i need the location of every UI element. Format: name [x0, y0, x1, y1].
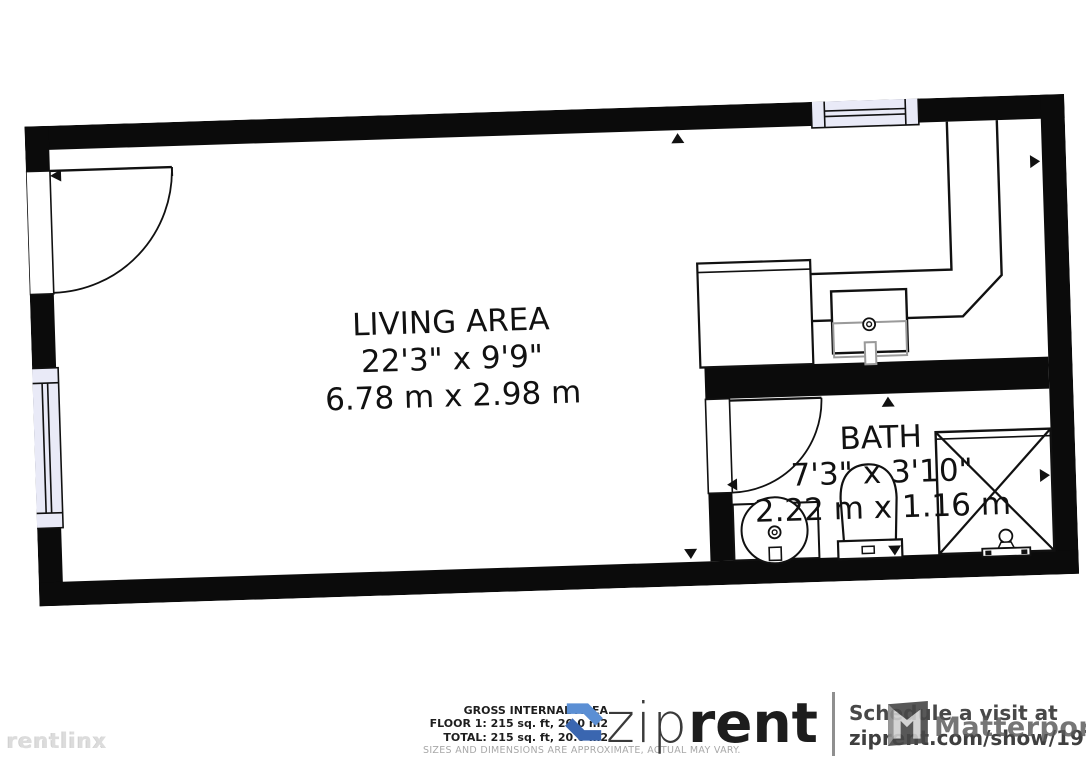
rentlinx-watermark: rentlinx	[7, 729, 107, 753]
living-area-dims-metric: 6.78 m x 2.98 m	[325, 374, 582, 418]
bath-name: BATH	[839, 419, 922, 458]
floor-plan-drawing: LIVING AREA 22'3" x 9'9" 6.78 m x 2.98 m…	[25, 94, 1080, 606]
window-top	[811, 97, 919, 128]
ziprent-wordmark: ziprent	[606, 694, 818, 752]
matterport-watermark: Matterport	[934, 712, 1086, 743]
window-left	[30, 368, 63, 529]
marker-up-icon	[671, 133, 684, 143]
ziprent-wordmark-zip: zip	[606, 691, 688, 755]
kitchen-area	[693, 120, 1004, 369]
walls	[25, 94, 1080, 606]
marker-down-icon	[684, 549, 697, 559]
kitchen-counter	[697, 260, 813, 367]
matterport-logo-icon	[886, 700, 930, 746]
marker-up-icon	[881, 396, 894, 406]
marker-right-icon	[1030, 155, 1040, 168]
ziprent-logo-icon	[563, 701, 605, 743]
door-swing-arc	[50, 167, 176, 293]
floor-plan-page: LIVING AREA 22'3" x 9'9" 6.78 m x 2.98 m…	[0, 0, 1086, 768]
living-area-name: LIVING AREA	[352, 301, 550, 343]
living-area-dims-imperial: 22'3" x 9'9"	[360, 339, 543, 381]
floor-plan: LIVING AREA 22'3" x 9'9" 6.78 m x 2.98 m…	[25, 94, 1080, 606]
footer-divider	[832, 692, 835, 756]
ziprent-wordmark-rent: rent	[688, 691, 818, 755]
entry-door	[26, 167, 176, 295]
